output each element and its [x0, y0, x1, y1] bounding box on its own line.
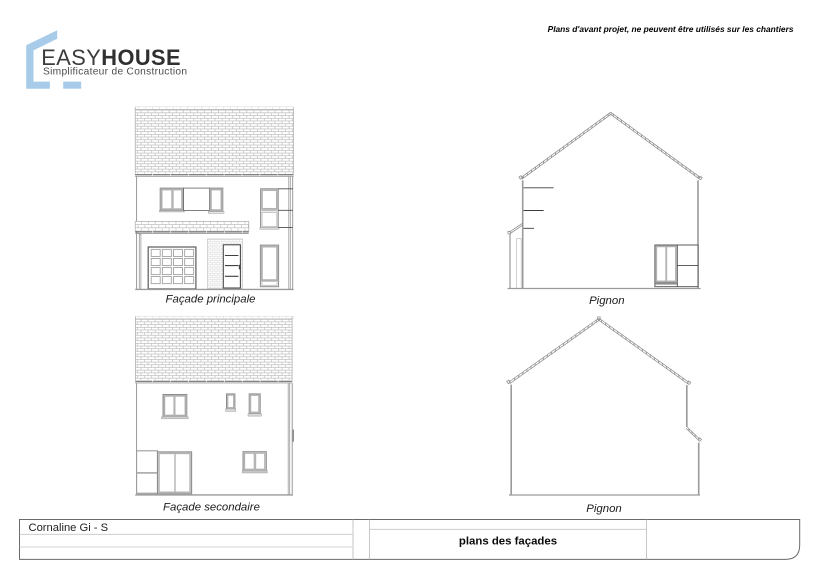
svg-text:Façade secondaire: Façade secondaire — [163, 502, 260, 514]
svg-text:Pignon: Pignon — [589, 295, 624, 307]
svg-text:plans des façades: plans des façades — [459, 535, 557, 547]
svg-text:Pignon: Pignon — [586, 503, 621, 515]
svg-text:Façade principale: Façade principale — [166, 294, 256, 306]
svg-text:Cornaline Gi - S: Cornaline Gi - S — [29, 522, 109, 534]
svg-text:Plans d'avant projet, ne peuve: Plans d'avant projet, ne peuvent être ut… — [548, 24, 794, 34]
svg-text:Simplificateur de Construction: Simplificateur de Construction — [43, 67, 187, 78]
